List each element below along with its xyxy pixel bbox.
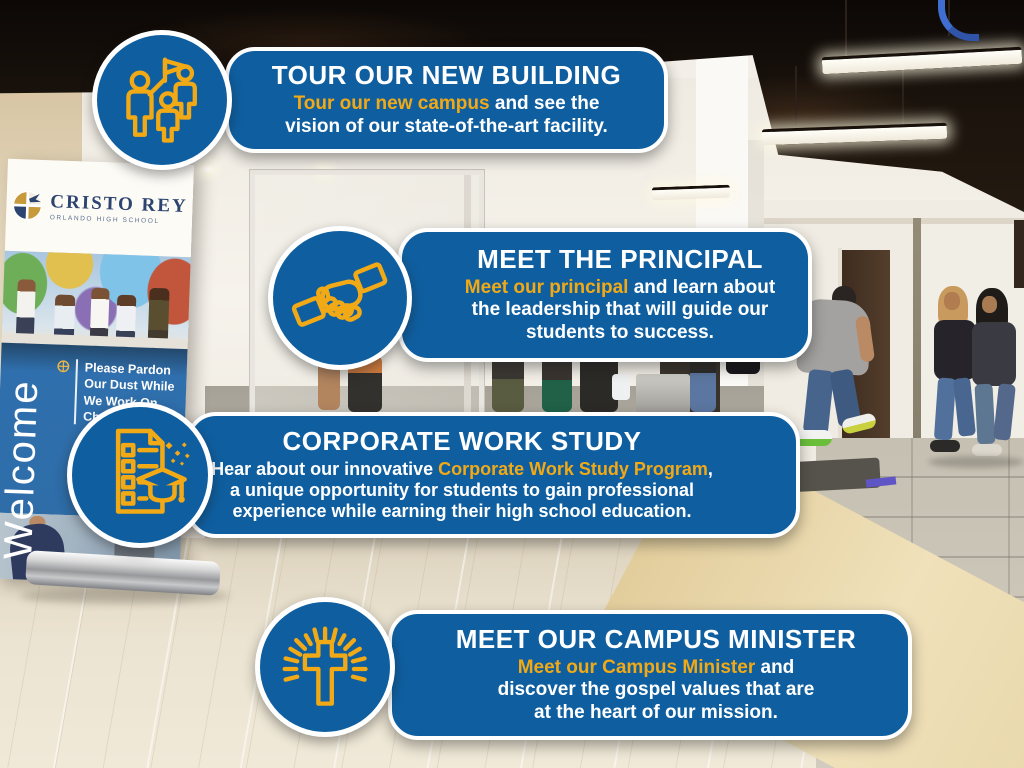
steel-cart xyxy=(636,374,690,414)
cristo-rey-logo-mark xyxy=(11,189,44,222)
card-body-highlight: Tour our new campus xyxy=(294,93,490,114)
plastic-jug xyxy=(612,374,630,400)
feet-shadow xyxy=(928,456,1024,468)
shoe xyxy=(930,440,960,452)
card-body-highlight: Meet our Campus Minister xyxy=(518,657,756,678)
hanging-wire xyxy=(845,0,847,56)
jeans-leg xyxy=(993,383,1016,440)
sneaker xyxy=(972,444,1002,456)
dark-door-sliver xyxy=(1014,220,1024,288)
jeans-leg xyxy=(974,384,995,445)
card-body-text: Hear about our innovative xyxy=(211,459,438,479)
card-title: TOUR OUR NEW BUILDING xyxy=(272,62,621,89)
handshake-icon xyxy=(268,226,412,370)
card-pill: MEET THE PRINCIPALMeet our principal and… xyxy=(398,228,812,362)
card-body-highlight: Meet our principal xyxy=(465,277,629,298)
card-body: Meet our principal and learn about the l… xyxy=(465,277,775,344)
card-title: CORPORATE WORK STUDY xyxy=(282,428,641,455)
led-light-fixture xyxy=(652,185,730,201)
recessed-ceiling-light xyxy=(200,164,214,174)
card-pill: MEET OUR CAMPUS MINISTERMeet our Campus … xyxy=(388,610,912,740)
cross-rays-icon xyxy=(255,597,395,737)
walker-green xyxy=(542,354,572,412)
face xyxy=(944,292,960,310)
dark-top xyxy=(972,322,1016,386)
card-title: MEET THE PRINCIPAL xyxy=(477,246,763,273)
small-logo-icon xyxy=(57,360,70,373)
flyer-canvas: CRISTO REY ORLANDO HIGH SCHOOL Please Pa… xyxy=(0,0,1024,768)
tour-group-flag-icon xyxy=(92,30,232,170)
school-name: CRISTO REY xyxy=(50,192,188,216)
person-dark-hair xyxy=(968,288,1022,466)
hanging-wire xyxy=(902,60,904,130)
card-body: Tour our new campus and see the vision o… xyxy=(285,93,608,138)
card-body: Meet our Campus Minister and discover th… xyxy=(498,657,815,724)
face xyxy=(982,296,997,313)
hanging-wire xyxy=(795,66,797,128)
card-title: MEET OUR CAMPUS MINISTER xyxy=(456,626,857,653)
card-pill: CORPORATE WORK STUDYHear about our innov… xyxy=(186,412,800,538)
rollup-logo-header: CRISTO REY ORLANDO HIGH SCHOOL xyxy=(5,159,194,257)
card-pill: TOUR OUR NEW BUILDINGTour our new campus… xyxy=(225,47,668,153)
card-body: Hear about our innovative Corporate Work… xyxy=(211,459,713,523)
card-body-highlight: Corporate Work Study Program xyxy=(438,459,708,479)
checklist-gradcap-icon xyxy=(67,402,213,548)
jeans-leg xyxy=(934,377,956,440)
